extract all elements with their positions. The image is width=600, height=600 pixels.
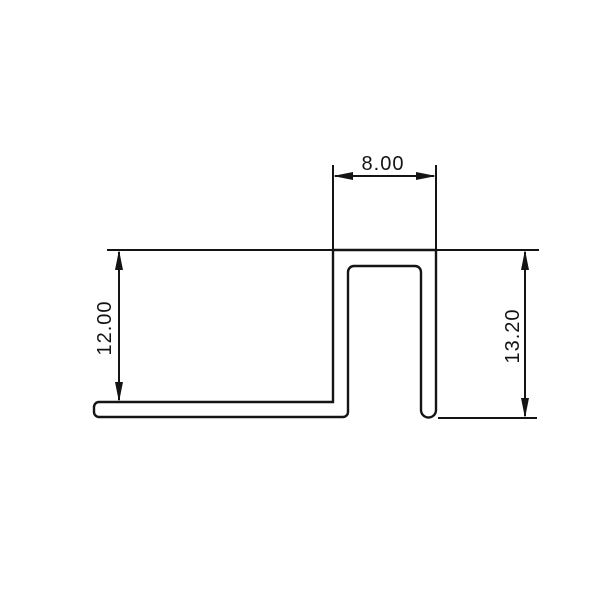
dimension-label-left-height: 12.00 (94, 300, 116, 355)
dimension-left-height: 12.00 (94, 250, 123, 402)
profile-outline (94, 250, 436, 418)
technical-drawing-canvas: 8.00 12.00 13.20 (0, 0, 600, 600)
arrowhead-top (521, 250, 529, 270)
dimension-top-width: 8.00 (333, 153, 436, 249)
arrowhead-left (333, 172, 353, 180)
arrowhead-bottom (521, 398, 529, 418)
arrowhead-bottom (115, 382, 123, 402)
drawing-svg: 8.00 12.00 13.20 (0, 0, 600, 600)
dimension-label-top-width: 8.00 (362, 153, 405, 175)
arrowhead-top (115, 250, 123, 270)
dimension-right-height: 13.20 (502, 250, 529, 418)
drawing-ink-layer: 8.00 12.00 13.20 (94, 153, 539, 418)
dimension-label-right-height: 13.20 (502, 308, 524, 363)
arrowhead-right (416, 172, 436, 180)
